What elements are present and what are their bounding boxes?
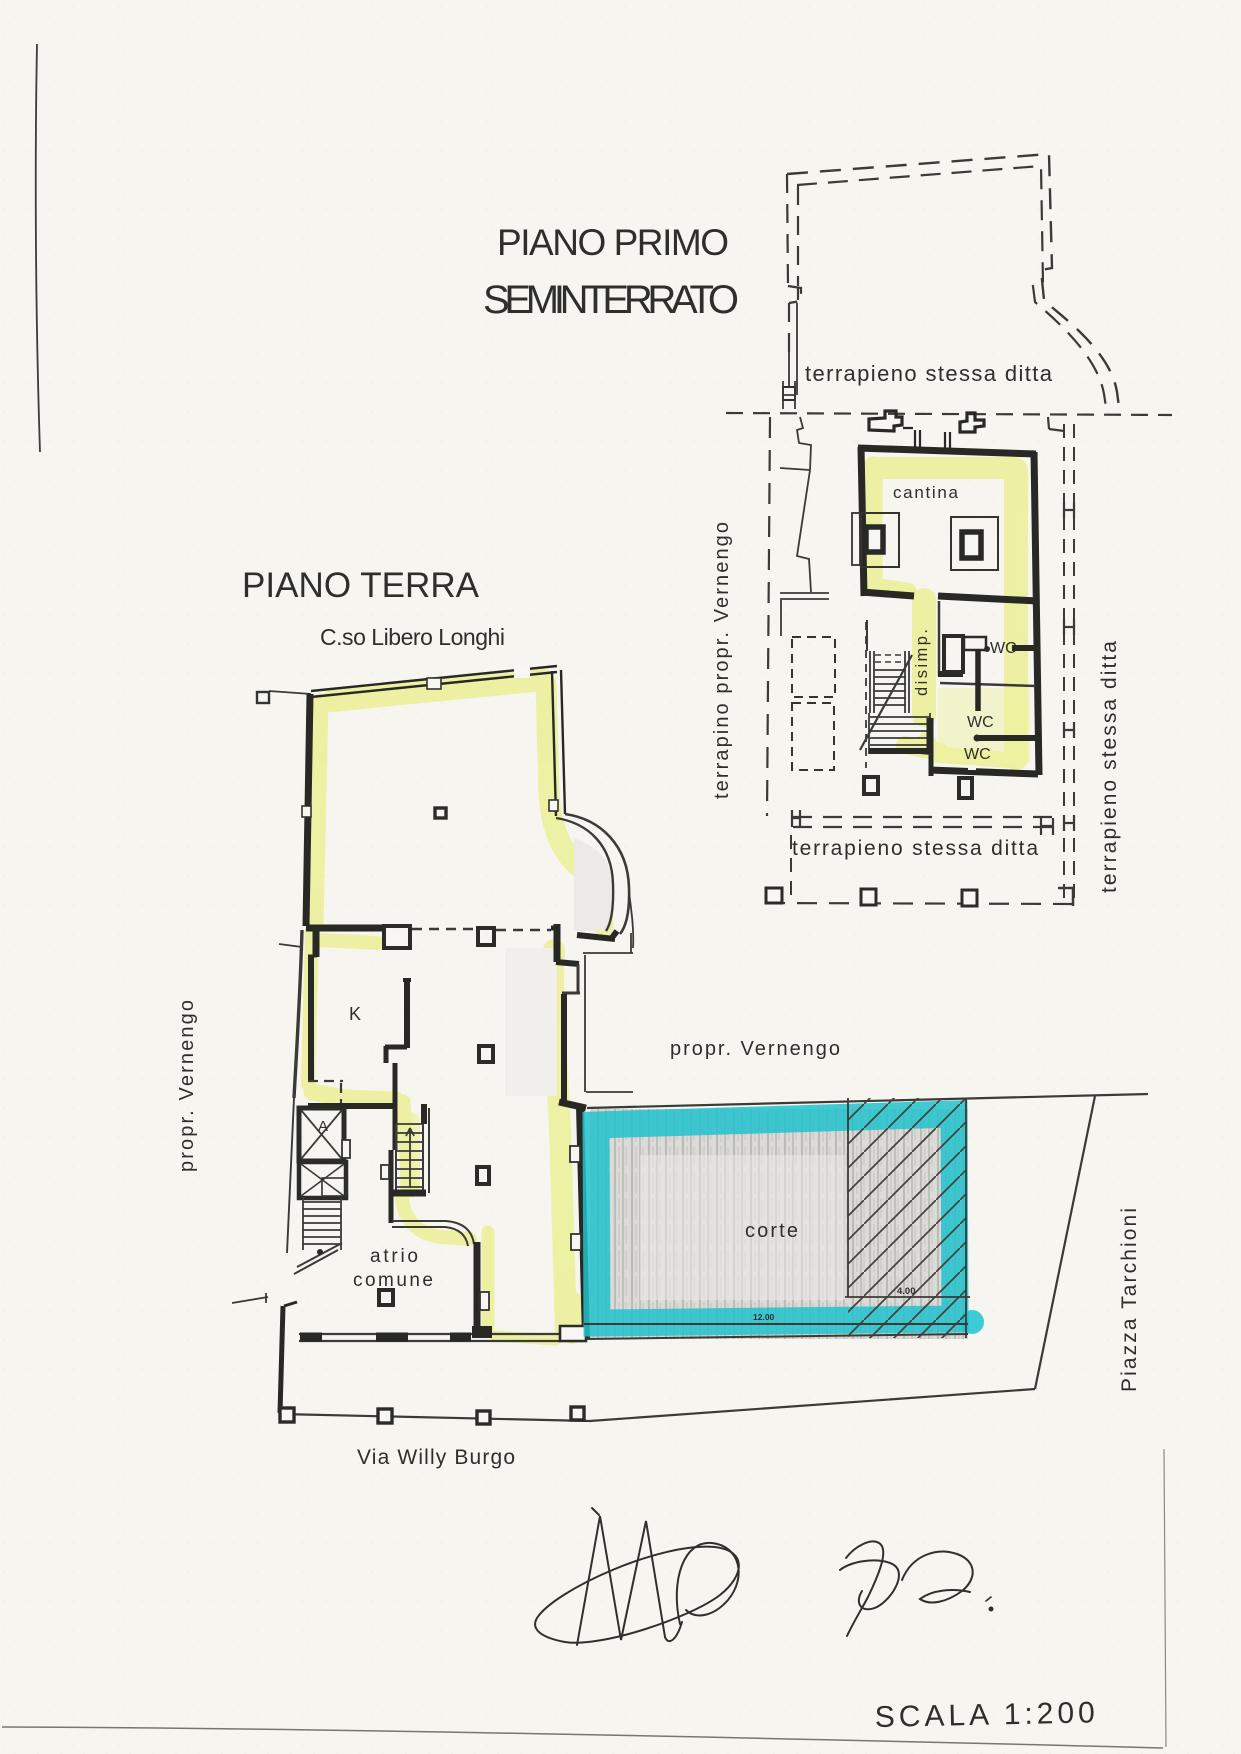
svg-text:A: A bbox=[318, 1118, 328, 1135]
svg-text:cantina: cantina bbox=[893, 483, 959, 502]
svg-text:C.so Libero Longhi: C.so Libero Longhi bbox=[320, 624, 505, 650]
svg-text:Via Willy Burgo: Via Willy Burgo bbox=[357, 1446, 515, 1469]
svg-text:K: K bbox=[349, 1004, 361, 1024]
svg-text:atrio: atrio bbox=[370, 1246, 418, 1267]
svg-text:4.00: 4.00 bbox=[897, 1286, 916, 1297]
svg-text:SCALA 1:200: SCALA 1:200 bbox=[874, 1696, 1097, 1734]
svg-text:WC: WC bbox=[967, 714, 994, 731]
svg-text:PIANO PRIMO: PIANO PRIMO bbox=[497, 222, 729, 263]
svg-text:12.00: 12.00 bbox=[753, 1312, 775, 1322]
svg-text:SEMINTERRATO: SEMINTERRATO bbox=[483, 278, 739, 322]
svg-text:WC: WC bbox=[964, 746, 991, 763]
svg-text:terrapieno stessa ditta: terrapieno stessa ditta bbox=[805, 361, 1053, 386]
svg-text:PIANO TERRA: PIANO TERRA bbox=[242, 566, 480, 605]
svg-text:corte: corte bbox=[745, 1220, 798, 1242]
svg-text:WC: WC bbox=[990, 640, 1017, 657]
svg-text:Piazza Tarchioni: Piazza Tarchioni bbox=[1118, 1208, 1141, 1392]
